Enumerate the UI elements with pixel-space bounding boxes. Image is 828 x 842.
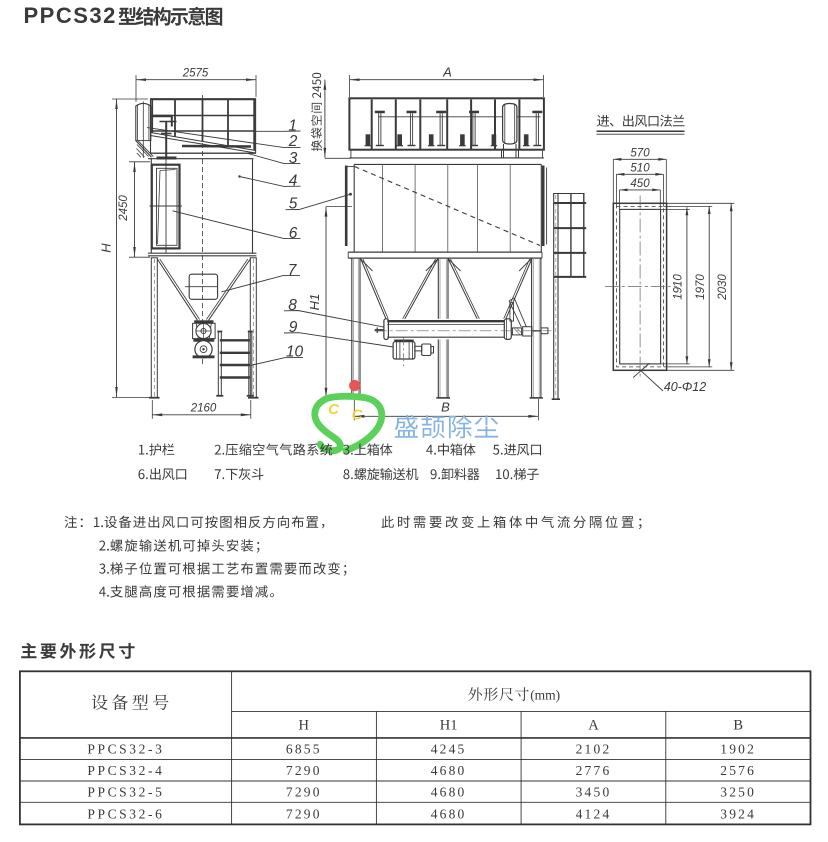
- svg-text:A: A: [588, 718, 599, 734]
- svg-text:2576: 2576: [720, 763, 756, 778]
- svg-text:H1: H1: [307, 294, 322, 311]
- svg-text:PPCS32-5: PPCS32-5: [87, 785, 164, 800]
- svg-text:1902: 1902: [720, 742, 756, 757]
- svg-text:7290: 7290: [286, 785, 322, 800]
- svg-text:H: H: [99, 243, 114, 253]
- svg-text:B: B: [441, 400, 450, 415]
- svg-text:6855: 6855: [286, 742, 322, 757]
- svg-text:2450: 2450: [118, 195, 130, 222]
- svg-text:4680: 4680: [431, 763, 467, 778]
- svg-text:40-Φ12: 40-Φ12: [664, 380, 706, 394]
- svg-text:4680: 4680: [431, 806, 467, 821]
- svg-text:2160: 2160: [190, 403, 217, 415]
- svg-text:3: 3: [289, 150, 298, 167]
- svg-text:4124: 4124: [576, 806, 612, 821]
- svg-text:7290: 7290: [286, 763, 322, 778]
- svg-text:PPCS32-4: PPCS32-4: [87, 763, 164, 778]
- svg-text:2776: 2776: [576, 763, 612, 778]
- svg-text:PPCS32-3: PPCS32-3: [87, 742, 164, 757]
- svg-text:570: 570: [630, 148, 650, 160]
- svg-text:3450: 3450: [576, 785, 612, 800]
- svg-text:2102: 2102: [576, 742, 612, 757]
- svg-text:C: C: [352, 407, 364, 424]
- svg-text:H: H: [299, 718, 310, 734]
- svg-text:7: 7: [288, 262, 298, 279]
- svg-text:2575: 2575: [182, 68, 209, 80]
- svg-text:10: 10: [286, 344, 304, 361]
- svg-text:7290: 7290: [286, 806, 322, 821]
- svg-text:9: 9: [289, 319, 298, 336]
- svg-text:1: 1: [288, 118, 297, 135]
- svg-text:H1: H1: [440, 718, 458, 734]
- svg-text:8: 8: [288, 297, 297, 314]
- svg-text:A: A: [442, 65, 452, 80]
- svg-text:6: 6: [289, 225, 298, 242]
- svg-text:(mm): (mm): [530, 687, 560, 702]
- svg-text:3924: 3924: [720, 806, 756, 821]
- svg-text:4245: 4245: [431, 742, 467, 757]
- svg-text:B: B: [733, 718, 743, 734]
- svg-text:C: C: [328, 401, 340, 418]
- svg-text:1910: 1910: [673, 274, 685, 300]
- svg-text:PPCS32-6: PPCS32-6: [87, 806, 164, 821]
- svg-text:1970: 1970: [695, 274, 707, 300]
- svg-text:4680: 4680: [431, 785, 467, 800]
- svg-text:PPCS32: PPCS32: [24, 3, 117, 28]
- svg-text:3250: 3250: [720, 785, 756, 800]
- svg-text:5: 5: [289, 196, 298, 213]
- svg-text:4: 4: [289, 173, 298, 190]
- svg-text:510: 510: [630, 163, 650, 175]
- svg-text:2030: 2030: [717, 274, 729, 301]
- svg-text:450: 450: [630, 178, 650, 190]
